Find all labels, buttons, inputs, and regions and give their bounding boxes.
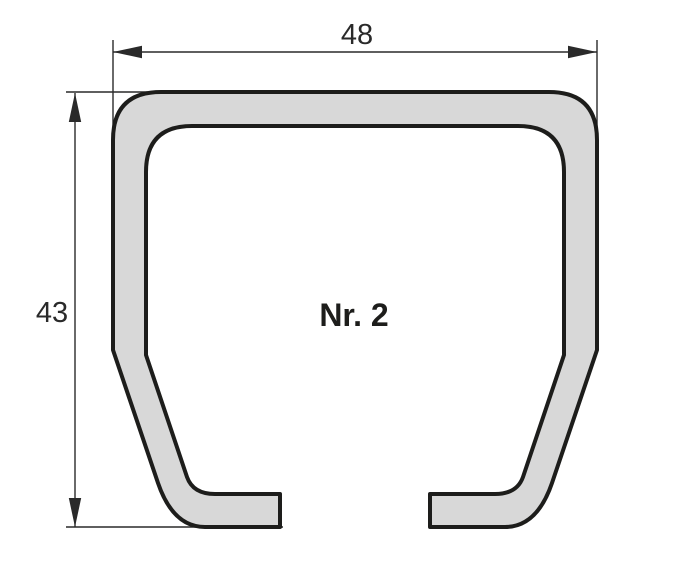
- width-dimension-label: 48: [341, 19, 373, 51]
- width-dimension: 48: [113, 19, 597, 58]
- arrow-left-icon: [113, 46, 142, 58]
- drawing-canvas: 48 43 Nr. 2: [0, 0, 684, 563]
- height-dimension: 43: [36, 93, 81, 527]
- arrow-right-icon: [568, 46, 597, 58]
- arrow-down-icon: [69, 498, 81, 527]
- height-dimension-label: 43: [36, 297, 68, 329]
- profile-name-label: Nr. 2: [319, 297, 388, 333]
- c-rail-profile-drawing: 48 43 Nr. 2: [0, 0, 684, 563]
- arrow-up-icon: [69, 93, 81, 122]
